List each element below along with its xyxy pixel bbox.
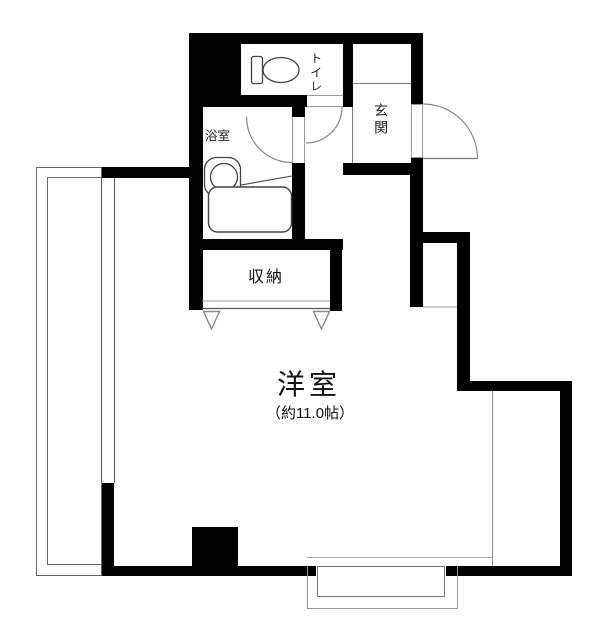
- wall-segment: [560, 381, 572, 576]
- wall-segment: [343, 163, 423, 175]
- wall-segment: [240, 33, 423, 44]
- wall-segment: [189, 239, 343, 250]
- wall-segment: [102, 167, 189, 178]
- counter-edge-line: [241, 176, 292, 185]
- washbasin-icon: [205, 158, 241, 197]
- wall-segment: [330, 250, 342, 311]
- wall-segment: [102, 566, 316, 576]
- wall-segment: [292, 163, 305, 240]
- bay-window-inner: [317, 566, 445, 597]
- bathtub-icon: [209, 187, 292, 232]
- bathroom-label: 浴室: [205, 129, 230, 143]
- entrance-label: 玄関: [373, 103, 389, 137]
- western-room-label: 洋室: [209, 369, 409, 401]
- wall-segment: [292, 107, 305, 117]
- door-swing-arc: [423, 104, 478, 159]
- wall-segment: [457, 381, 572, 391]
- shoe-cabinet-divider-line: [353, 83, 411, 84]
- toilet-door-opening: [307, 95, 343, 107]
- wall-pillar: [192, 527, 238, 566]
- closet-label: 収納: [216, 269, 316, 287]
- floor-plan: トイレ 玄関 浴室 収納 洋室 （約11.0帖）: [0, 0, 600, 640]
- wall-segment: [410, 232, 470, 243]
- closet-door-triangle: [204, 312, 220, 330]
- door-swing-arc: [306, 107, 342, 143]
- bathroom-door-opening: [292, 117, 305, 163]
- closet-door-triangle: [314, 312, 330, 330]
- wall-segment: [411, 43, 423, 104]
- wall-segment: [343, 43, 353, 107]
- western-room-size-label: （約11.0帖）: [210, 405, 410, 422]
- wall-segment: [102, 483, 114, 576]
- wall-segment: [202, 95, 307, 107]
- wall-segment: [457, 243, 470, 391]
- toilet-label: トイレ: [308, 52, 322, 94]
- wall-segment: [446, 566, 572, 576]
- wall-segment: [189, 33, 203, 310]
- entrance-step-line: [352, 107, 353, 163]
- entrance-door-leaf: [411, 104, 423, 158]
- door-swing-arc: [247, 117, 293, 163]
- toilet-icon: [252, 57, 300, 84]
- window: [101, 178, 115, 483]
- balcony-inner-rail: [47, 177, 102, 565]
